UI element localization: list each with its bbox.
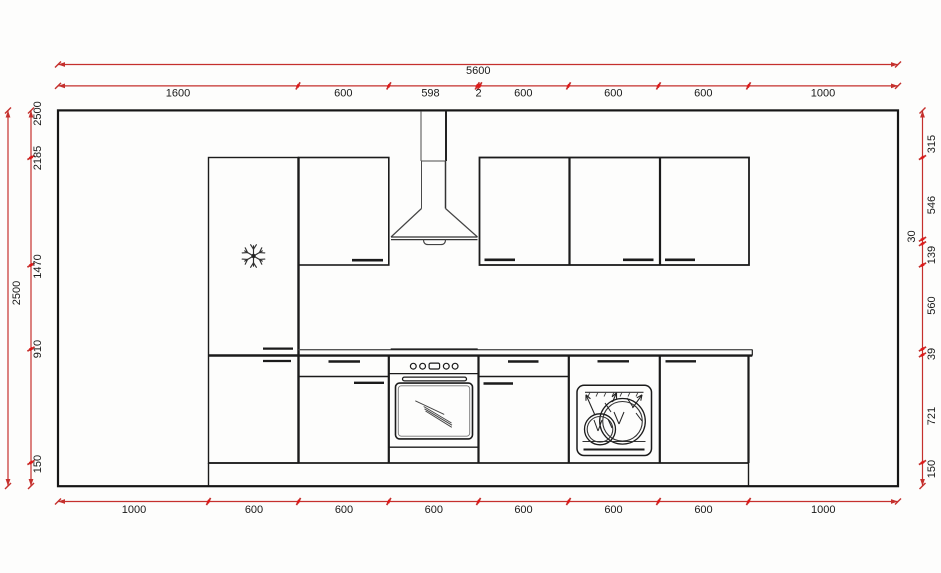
- svg-text:150: 150: [32, 455, 44, 473]
- svg-text:600: 600: [514, 87, 532, 99]
- svg-text:39: 39: [926, 348, 938, 360]
- svg-text:600: 600: [334, 87, 352, 99]
- svg-text:30: 30: [906, 230, 918, 242]
- svg-text:2: 2: [476, 87, 482, 99]
- svg-text:2185: 2185: [32, 146, 44, 170]
- svg-text:600: 600: [245, 504, 263, 516]
- svg-text:1000: 1000: [811, 504, 835, 516]
- svg-text:721: 721: [926, 407, 938, 425]
- svg-text:600: 600: [604, 504, 622, 516]
- svg-text:1000: 1000: [122, 504, 146, 516]
- svg-text:600: 600: [694, 504, 712, 516]
- svg-text:150: 150: [926, 460, 938, 478]
- svg-text:2500: 2500: [32, 101, 44, 125]
- svg-text:600: 600: [335, 504, 353, 516]
- svg-text:546: 546: [926, 196, 938, 214]
- svg-text:600: 600: [514, 504, 532, 516]
- svg-text:315: 315: [926, 135, 938, 153]
- svg-text:910: 910: [32, 340, 44, 358]
- svg-text:5600: 5600: [466, 65, 490, 77]
- svg-text:2500: 2500: [11, 281, 23, 305]
- svg-text:598: 598: [421, 87, 439, 99]
- svg-text:139: 139: [926, 246, 938, 264]
- svg-text:600: 600: [425, 504, 443, 516]
- svg-text:600: 600: [604, 87, 622, 99]
- svg-text:1000: 1000: [811, 87, 835, 99]
- svg-text:1470: 1470: [32, 254, 44, 278]
- svg-text:560: 560: [926, 296, 938, 314]
- svg-text:600: 600: [694, 87, 712, 99]
- svg-text:1600: 1600: [166, 87, 190, 99]
